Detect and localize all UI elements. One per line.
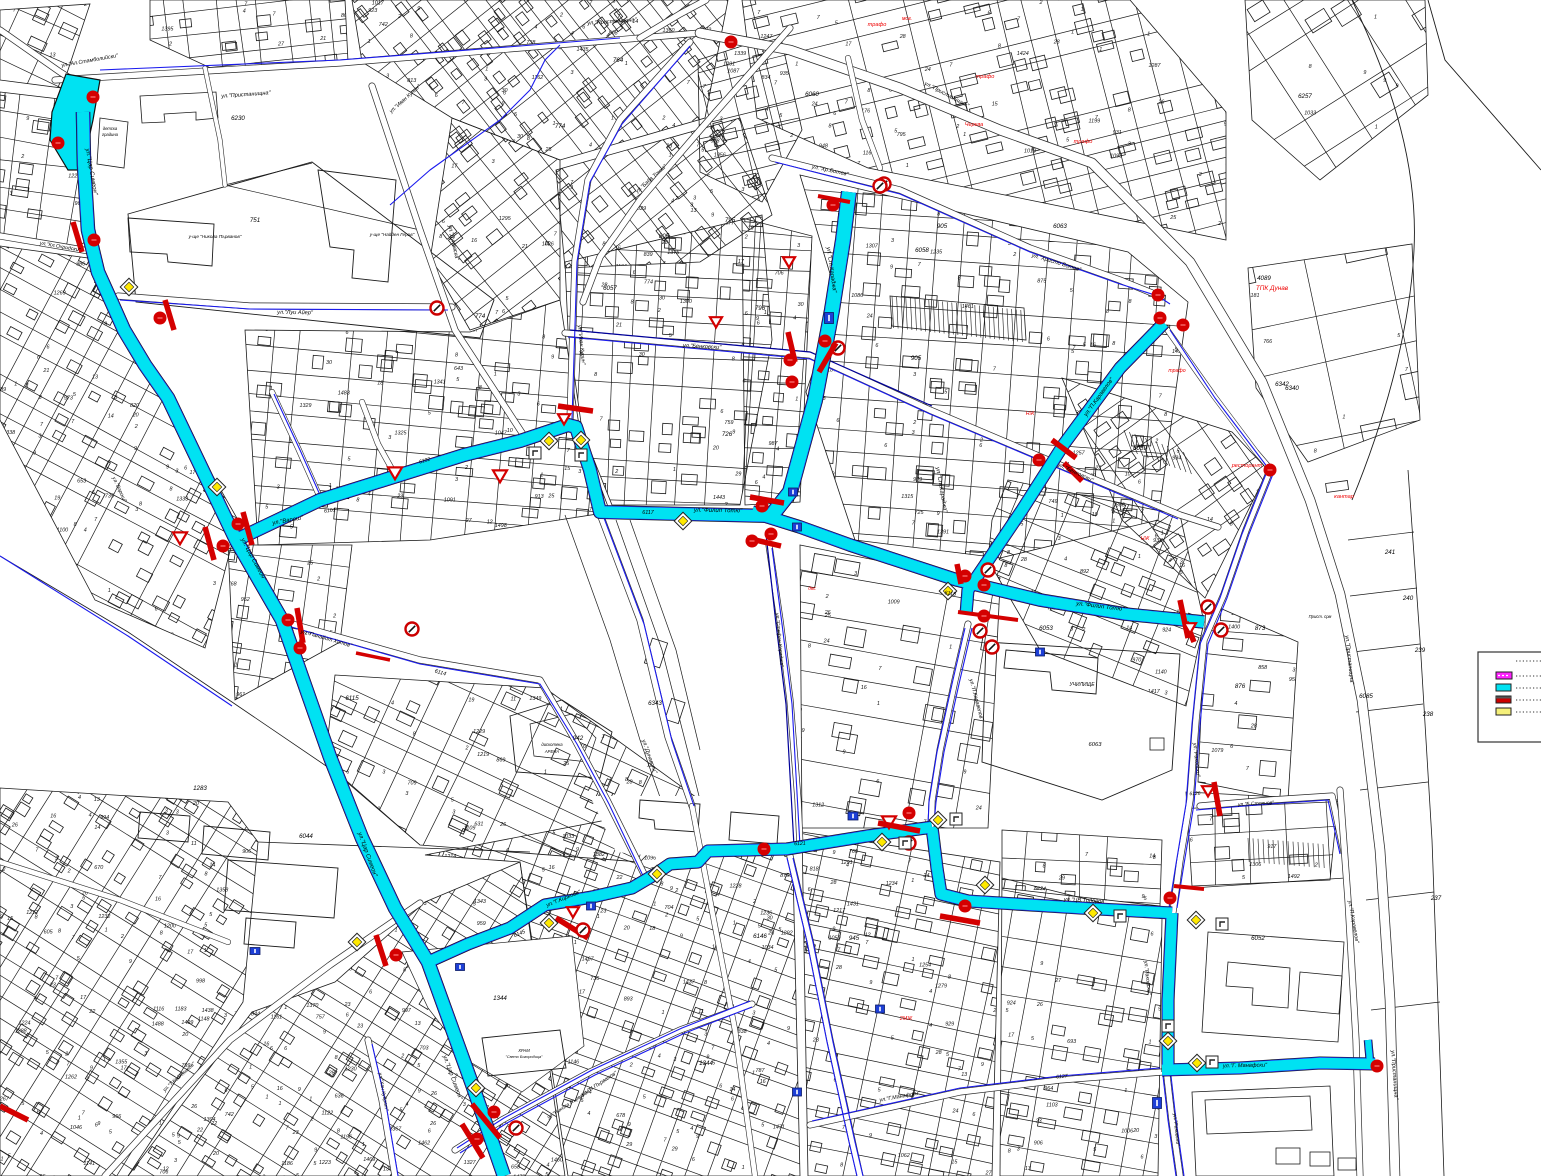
svg-text:16: 16 <box>615 246 621 252</box>
svg-text:725: 725 <box>915 510 925 516</box>
svg-text:1283: 1283 <box>193 785 207 792</box>
svg-text:6: 6 <box>836 418 839 424</box>
svg-text:6: 6 <box>92 490 95 496</box>
svg-text:1: 1 <box>653 902 656 908</box>
svg-text:2: 2 <box>67 868 71 874</box>
svg-text:8: 8 <box>139 502 142 508</box>
svg-text:1: 1 <box>1147 32 1150 38</box>
svg-text:27: 27 <box>1054 978 1062 984</box>
svg-text:3: 3 <box>1154 1134 1157 1140</box>
svg-text:8: 8 <box>58 928 61 934</box>
svg-text:4: 4 <box>690 1126 693 1132</box>
svg-text:ул."Луи Айер": ул."Луи Айер" <box>276 309 314 317</box>
svg-text:3: 3 <box>405 791 408 797</box>
svg-text:27: 27 <box>985 1171 993 1176</box>
svg-text:6063: 6063 <box>1089 742 1103 748</box>
svg-text:8: 8 <box>455 353 458 359</box>
svg-text:21: 21 <box>615 322 622 328</box>
svg-text:6: 6 <box>346 1012 349 1018</box>
svg-text:1086: 1086 <box>851 293 863 299</box>
svg-text:6: 6 <box>979 443 982 449</box>
svg-text:3: 3 <box>382 769 385 775</box>
svg-text:4: 4 <box>547 1163 550 1169</box>
svg-text:1375: 1375 <box>667 250 680 256</box>
svg-text:трафо: трафо <box>868 22 887 28</box>
svg-text:1438: 1438 <box>202 1008 214 1014</box>
svg-text:6: 6 <box>1047 337 1050 343</box>
svg-text:2: 2 <box>168 42 172 48</box>
svg-text:8: 8 <box>39 395 42 401</box>
svg-text:4: 4 <box>929 989 932 995</box>
svg-text:20: 20 <box>181 1032 188 1038</box>
svg-text:30: 30 <box>517 134 523 140</box>
svg-text:726: 726 <box>722 431 733 438</box>
svg-text:1: 1 <box>284 1005 287 1011</box>
svg-text:1: 1 <box>362 1142 365 1148</box>
svg-text:1400: 1400 <box>1228 625 1240 631</box>
svg-text:1: 1 <box>544 770 547 776</box>
svg-text:1395: 1395 <box>161 26 174 32</box>
svg-text:6115: 6115 <box>345 695 359 702</box>
svg-text:28: 28 <box>626 779 633 785</box>
svg-text:2: 2 <box>752 899 756 905</box>
svg-text:8: 8 <box>1230 521 1233 527</box>
svg-text:17: 17 <box>451 163 458 169</box>
svg-text:16: 16 <box>263 1042 269 1048</box>
svg-text:1: 1 <box>266 1094 269 1100</box>
svg-text:24: 24 <box>975 805 982 811</box>
svg-text:9: 9 <box>981 1062 984 1068</box>
svg-text:1483: 1483 <box>338 391 350 397</box>
svg-text:21: 21 <box>42 368 49 374</box>
svg-text:8: 8 <box>1309 64 1312 70</box>
svg-text:1: 1 <box>733 921 736 927</box>
svg-text:18: 18 <box>377 380 383 386</box>
svg-text:2: 2 <box>629 1063 633 1069</box>
svg-text:6: 6 <box>720 409 723 415</box>
svg-text:8: 8 <box>413 732 416 738</box>
svg-text:709: 709 <box>408 781 417 787</box>
svg-text:4: 4 <box>658 1053 661 1059</box>
svg-text:ул."Г. Манафски": ул."Г. Манафски" <box>1222 1063 1268 1070</box>
svg-text:4: 4 <box>767 1041 770 1047</box>
svg-text:4: 4 <box>1112 510 1115 516</box>
svg-text:3: 3 <box>224 1013 227 1019</box>
svg-text:26: 26 <box>1157 99 1164 105</box>
svg-text:839: 839 <box>644 252 653 258</box>
svg-text:ул."Филип Тотю": ул."Филип Тотю" <box>693 508 743 515</box>
svg-text:дискотека: дискотека <box>541 742 563 747</box>
svg-text:6: 6 <box>502 309 505 315</box>
svg-text:8: 8 <box>1314 449 1317 455</box>
svg-text:23: 23 <box>396 494 403 500</box>
svg-text:1370: 1370 <box>306 1003 318 1009</box>
svg-text:4: 4 <box>40 1131 43 1137</box>
svg-text:3: 3 <box>1128 141 1131 147</box>
svg-text:14: 14 <box>209 863 215 869</box>
svg-text:9: 9 <box>833 850 836 856</box>
svg-text:1099: 1099 <box>1110 153 1122 159</box>
svg-text:16: 16 <box>155 897 161 903</box>
svg-text:240: 240 <box>1402 595 1414 602</box>
svg-text:14: 14 <box>1149 854 1155 860</box>
svg-text:16: 16 <box>277 1086 283 1092</box>
svg-text:8: 8 <box>631 299 634 305</box>
svg-text:9: 9 <box>570 185 573 191</box>
svg-text:4: 4 <box>762 475 765 481</box>
svg-text:23: 23 <box>49 983 56 989</box>
svg-text:1279: 1279 <box>935 984 947 990</box>
svg-text:6: 6 <box>1141 1155 1144 1161</box>
svg-text:808: 808 <box>609 31 618 37</box>
svg-text:6: 6 <box>1151 932 1154 938</box>
svg-text:1344: 1344 <box>699 1060 713 1067</box>
svg-text:6342: 6342 <box>1275 381 1289 388</box>
svg-text:6: 6 <box>876 779 879 785</box>
svg-text:8: 8 <box>542 334 545 340</box>
svg-text:1349: 1349 <box>529 696 541 702</box>
svg-text:9: 9 <box>711 213 714 219</box>
svg-text:1219: 1219 <box>477 752 489 758</box>
svg-text:6: 6 <box>875 343 878 349</box>
svg-text:6: 6 <box>537 402 540 408</box>
svg-text:24: 24 <box>923 873 930 879</box>
svg-text:9: 9 <box>696 1134 699 1140</box>
svg-text:30: 30 <box>798 302 804 308</box>
svg-text:17: 17 <box>187 950 194 956</box>
svg-text:9: 9 <box>1396 84 1399 90</box>
svg-text:23: 23 <box>665 144 672 150</box>
svg-text:1: 1 <box>1112 519 1115 525</box>
svg-text:24: 24 <box>924 67 931 73</box>
svg-text:1017: 1017 <box>372 0 385 6</box>
svg-text:8: 8 <box>410 33 413 39</box>
svg-text:3: 3 <box>0 915 3 921</box>
svg-text:1355: 1355 <box>115 1059 128 1065</box>
svg-text:23: 23 <box>344 1002 351 1008</box>
svg-text:6230: 6230 <box>231 115 245 122</box>
svg-text:24: 24 <box>952 1109 959 1115</box>
svg-text:8: 8 <box>639 780 642 786</box>
svg-text:6: 6 <box>503 90 506 96</box>
svg-text:1122: 1122 <box>322 1110 334 1116</box>
svg-text:26: 26 <box>1036 1002 1043 1008</box>
svg-text:9: 9 <box>166 464 169 470</box>
svg-text:1161: 1161 <box>271 1014 283 1020</box>
svg-text:12: 12 <box>865 933 871 939</box>
svg-text:6117: 6117 <box>642 510 655 516</box>
svg-text:4: 4 <box>1064 556 1067 562</box>
svg-text:25: 25 <box>824 613 832 619</box>
svg-text:15: 15 <box>992 101 999 107</box>
svg-text:2: 2 <box>664 913 668 919</box>
svg-text:1: 1 <box>279 1101 282 1107</box>
svg-text:6343: 6343 <box>648 700 662 707</box>
svg-text:9: 9 <box>832 926 835 932</box>
svg-text:4: 4 <box>1234 701 1237 707</box>
svg-text:631: 631 <box>474 821 483 827</box>
svg-text:2: 2 <box>1039 0 1043 6</box>
svg-text:6060: 6060 <box>805 91 819 98</box>
svg-text:1: 1 <box>911 878 914 884</box>
svg-text:22: 22 <box>616 875 623 881</box>
svg-text:6: 6 <box>225 1088 228 1094</box>
svg-text:8: 8 <box>335 1055 338 1061</box>
svg-text:6: 6 <box>184 466 187 472</box>
svg-text:9: 9 <box>177 1134 180 1140</box>
svg-text:693: 693 <box>1067 1039 1076 1045</box>
svg-text:17: 17 <box>121 1065 128 1071</box>
svg-text:2: 2 <box>310 1117 314 1123</box>
svg-text:796: 796 <box>755 305 766 312</box>
svg-text:1499: 1499 <box>181 1020 193 1026</box>
svg-text:6: 6 <box>37 1110 40 1116</box>
svg-text:6053: 6053 <box>1039 625 1053 632</box>
svg-text:9: 9 <box>418 1089 421 1095</box>
svg-text:8: 8 <box>1043 864 1046 870</box>
svg-text:6: 6 <box>692 1157 695 1163</box>
svg-text:2: 2 <box>559 12 563 18</box>
svg-text:1262: 1262 <box>65 1075 77 1081</box>
svg-text:6: 6 <box>731 1097 734 1103</box>
svg-text:17: 17 <box>738 259 745 265</box>
svg-text:2МЖ: 2МЖ <box>899 1016 913 1022</box>
svg-text:929: 929 <box>945 1022 954 1028</box>
svg-text:6257: 6257 <box>1298 93 1312 100</box>
svg-text:3: 3 <box>913 372 916 378</box>
svg-text:2: 2 <box>674 196 678 202</box>
svg-text:8: 8 <box>829 124 832 130</box>
svg-text:9: 9 <box>90 1065 93 1071</box>
svg-text:22: 22 <box>210 1121 217 1127</box>
svg-text:876: 876 <box>1235 683 1246 690</box>
svg-text:6: 6 <box>719 1084 722 1090</box>
svg-text:6: 6 <box>755 480 758 486</box>
svg-text:6: 6 <box>270 1046 273 1052</box>
svg-text:1: 1 <box>795 397 798 403</box>
svg-text:4: 4 <box>793 315 796 321</box>
svg-text:1: 1 <box>877 701 880 707</box>
svg-text:1358: 1358 <box>216 887 228 893</box>
svg-text:6: 6 <box>428 1129 431 1135</box>
svg-text:3: 3 <box>135 507 138 513</box>
svg-text:1236: 1236 <box>760 910 772 916</box>
svg-text:959: 959 <box>477 921 486 927</box>
svg-text:1033: 1033 <box>1304 111 1316 117</box>
svg-text:3: 3 <box>1199 172 1202 178</box>
svg-text:8: 8 <box>1008 1148 1011 1154</box>
svg-text:1287: 1287 <box>1149 63 1162 69</box>
svg-text:3: 3 <box>10 191 13 197</box>
svg-text:2: 2 <box>2 867 6 873</box>
svg-text:2: 2 <box>1140 509 1144 515</box>
svg-text:1291: 1291 <box>723 62 735 68</box>
svg-text:24: 24 <box>823 638 830 644</box>
svg-text:2: 2 <box>465 746 469 752</box>
svg-text:1033: 1033 <box>562 834 574 840</box>
svg-text:1: 1 <box>1071 29 1074 35</box>
svg-text:28: 28 <box>899 34 906 40</box>
svg-text:3: 3 <box>175 469 178 475</box>
svg-text:742: 742 <box>379 22 388 28</box>
svg-text:15: 15 <box>564 466 571 472</box>
svg-text:1: 1 <box>329 483 332 489</box>
svg-text:8: 8 <box>1128 108 1131 114</box>
svg-text:23: 23 <box>599 909 606 915</box>
svg-text:1391: 1391 <box>937 530 949 536</box>
svg-text:6: 6 <box>833 111 836 117</box>
svg-text:2: 2 <box>979 438 983 444</box>
svg-text:4: 4 <box>78 795 81 801</box>
svg-text:НЖ: НЖ <box>1026 411 1036 417</box>
svg-text:1: 1 <box>78 1116 81 1122</box>
svg-text:8: 8 <box>439 234 442 240</box>
svg-text:2: 2 <box>397 14 401 20</box>
svg-text:у-ще "Найден Геров": у-ще "Найден Геров" <box>369 231 415 237</box>
svg-text:16: 16 <box>861 685 867 691</box>
svg-text:1: 1 <box>235 663 238 669</box>
svg-text:6058: 6058 <box>915 247 929 254</box>
svg-text:25: 25 <box>306 560 314 566</box>
svg-text:11: 11 <box>191 841 197 847</box>
svg-text:838: 838 <box>738 1029 747 1035</box>
svg-text:28: 28 <box>1250 723 1257 729</box>
svg-text:704: 704 <box>665 905 674 911</box>
svg-text:дкс: дкс <box>808 586 816 592</box>
svg-text:923: 923 <box>368 8 377 14</box>
svg-text:9: 9 <box>104 321 107 327</box>
svg-text:кантар: кантар <box>1334 494 1354 500</box>
svg-text:1300: 1300 <box>680 299 692 305</box>
svg-text:706: 706 <box>159 1170 168 1176</box>
svg-text:764: 764 <box>613 57 624 64</box>
svg-text:1: 1 <box>204 948 207 954</box>
svg-text:детска: детска <box>103 126 118 131</box>
svg-text:8: 8 <box>1112 341 1115 347</box>
svg-text:9: 9 <box>129 959 132 965</box>
svg-text:8: 8 <box>205 872 208 878</box>
svg-text:3: 3 <box>704 1032 707 1038</box>
svg-text:2: 2 <box>789 133 793 139</box>
svg-text:4: 4 <box>748 959 751 965</box>
svg-text:4: 4 <box>846 862 849 868</box>
svg-text:8: 8 <box>527 136 530 142</box>
svg-text:10: 10 <box>507 428 513 434</box>
svg-text:1019: 1019 <box>1024 149 1036 155</box>
svg-text:1327: 1327 <box>464 1160 477 1166</box>
svg-text:29: 29 <box>1058 875 1065 881</box>
svg-text:1199: 1199 <box>1089 119 1101 125</box>
svg-text:1034: 1034 <box>762 945 774 951</box>
svg-text:986: 986 <box>76 262 85 268</box>
svg-text:трафо: трафо <box>1074 139 1093 145</box>
svg-text:813: 813 <box>407 78 416 84</box>
svg-text:1: 1 <box>662 1010 665 1016</box>
svg-text:8: 8 <box>114 395 117 401</box>
svg-text:1: 1 <box>1099 47 1102 53</box>
svg-text:25: 25 <box>545 147 553 153</box>
svg-text:2: 2 <box>20 154 24 160</box>
svg-text:26: 26 <box>499 822 506 828</box>
svg-text:8: 8 <box>937 211 940 217</box>
svg-text:945: 945 <box>849 935 860 942</box>
svg-text:1306: 1306 <box>1249 862 1261 868</box>
svg-text:1232: 1232 <box>98 914 110 920</box>
svg-text:13: 13 <box>50 52 56 58</box>
svg-text:13: 13 <box>92 374 98 380</box>
svg-text:20: 20 <box>623 925 630 931</box>
svg-text:3: 3 <box>797 243 800 249</box>
svg-text:820: 820 <box>130 403 139 409</box>
svg-text:8: 8 <box>660 882 663 888</box>
svg-text:3: 3 <box>1292 667 1295 673</box>
svg-text:1228: 1228 <box>730 884 742 890</box>
svg-text:1461: 1461 <box>962 304 974 310</box>
svg-text:8: 8 <box>479 385 482 391</box>
svg-text:20: 20 <box>712 446 719 452</box>
svg-text:6: 6 <box>633 270 636 276</box>
svg-text:6: 6 <box>582 24 585 30</box>
svg-text:1: 1 <box>1138 554 1141 560</box>
svg-text:760: 760 <box>849 849 858 855</box>
svg-text:21: 21 <box>319 36 326 42</box>
svg-text:25: 25 <box>562 761 570 767</box>
svg-text:978: 978 <box>711 139 720 145</box>
svg-text:8: 8 <box>732 357 735 363</box>
svg-text:1056: 1056 <box>714 153 726 159</box>
svg-text:8: 8 <box>948 974 951 980</box>
svg-text:9: 9 <box>33 450 36 456</box>
svg-text:757: 757 <box>316 1015 326 1021</box>
svg-text:3: 3 <box>854 571 857 577</box>
svg-text:4: 4 <box>589 143 592 149</box>
svg-text:9: 9 <box>417 6 420 12</box>
svg-text:774: 774 <box>555 123 566 130</box>
svg-text:605: 605 <box>44 930 54 936</box>
svg-text:26: 26 <box>190 1104 197 1110</box>
svg-text:8: 8 <box>170 486 173 492</box>
svg-text:9: 9 <box>754 185 757 191</box>
svg-text:2: 2 <box>1081 627 1085 633</box>
svg-text:9: 9 <box>732 430 735 436</box>
svg-text:893: 893 <box>624 997 633 1003</box>
svg-text:6: 6 <box>884 443 887 449</box>
svg-text:4: 4 <box>1169 558 1172 564</box>
svg-text:1431: 1431 <box>847 901 859 907</box>
svg-text:1: 1 <box>309 1097 312 1103</box>
svg-text:20: 20 <box>192 801 199 807</box>
svg-text:6: 6 <box>808 887 811 893</box>
svg-text:1: 1 <box>669 152 672 158</box>
svg-text:3: 3 <box>213 581 216 587</box>
svg-text:1325: 1325 <box>395 431 408 437</box>
svg-text:6: 6 <box>47 345 50 351</box>
svg-text:3: 3 <box>144 1051 147 1057</box>
svg-text:834: 834 <box>762 75 771 81</box>
svg-text:3: 3 <box>388 435 391 441</box>
svg-text:26: 26 <box>767 931 774 937</box>
svg-text:2: 2 <box>657 308 661 314</box>
svg-text:4089: 4089 <box>1257 275 1271 282</box>
svg-text:931: 931 <box>1153 538 1162 544</box>
svg-text:17: 17 <box>579 989 586 995</box>
svg-text:9: 9 <box>502 101 505 107</box>
svg-text:1315: 1315 <box>901 494 914 500</box>
svg-text:16: 16 <box>1090 343 1096 349</box>
svg-text:3: 3 <box>613 0 616 4</box>
svg-text:6057: 6057 <box>603 285 617 292</box>
svg-text:1288: 1288 <box>15 1028 27 1034</box>
